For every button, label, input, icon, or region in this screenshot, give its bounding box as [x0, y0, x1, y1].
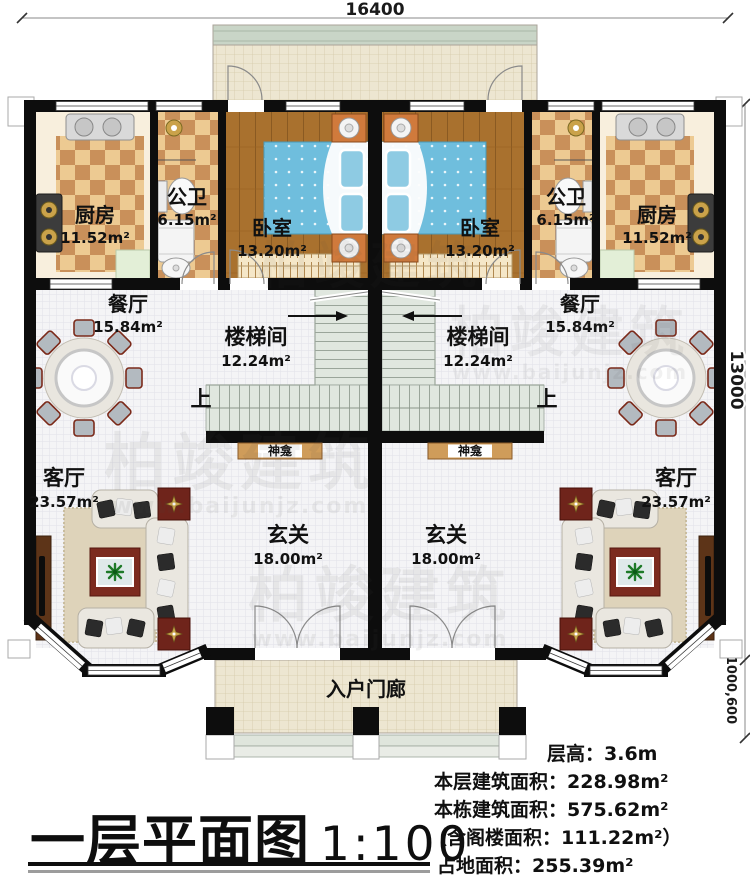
- label-dining-left-area: 15.84m²: [93, 318, 163, 336]
- label-dining-left-name: 餐厅: [108, 292, 148, 316]
- info-floor-area: 本层建筑面积：228.98m²: [434, 767, 668, 794]
- label-porch: 入户门廊: [326, 677, 406, 701]
- info-building-area: 本栋建筑面积：575.62m²: [434, 795, 668, 822]
- dimension-right-offsets: 1000,600: [723, 656, 738, 724]
- info-attic-area: （含阁楼面积：111.22m²）: [428, 823, 681, 850]
- label-living-left-name: 客厅: [43, 466, 85, 490]
- label-kitchen-right-name: 厨房: [637, 203, 677, 227]
- label-shrine-left: 神龛: [268, 443, 293, 458]
- label-bedroom-left-area: 13.20m²: [237, 242, 307, 260]
- label-bathroom-right-area: 6.15m²: [536, 211, 595, 229]
- info-floor-height: 层高：3.6m: [547, 739, 657, 766]
- info-land-area: 占地面积：255.39m²: [437, 851, 633, 878]
- label-foyer-left-area: 18.00m²: [253, 550, 323, 568]
- label-foyer-right-area: 18.00m²: [411, 550, 481, 568]
- label-foyer-right-name: 玄关: [425, 523, 467, 547]
- label-dining-right-area: 15.84m²: [545, 318, 615, 336]
- label-kitchen-left-area: 11.52m²: [60, 229, 130, 247]
- label-bathroom-left-area: 6.15m²: [157, 211, 216, 229]
- label-bathroom-right-name: 公卫: [546, 185, 586, 209]
- dimension-top-width: 16400: [345, 0, 404, 20]
- label-stairwell-left-name: 楼梯间: [225, 325, 288, 349]
- title-underline: [28, 862, 430, 866]
- label-kitchen-right-area: 11.52m²: [622, 229, 692, 247]
- label-stairwell-right-area: 12.24m²: [443, 352, 513, 370]
- label-stairwell-right-name: 楼梯间: [447, 325, 510, 349]
- label-living-right-area: 23.57m²: [641, 493, 711, 511]
- floor-plan-svg: 16400 13000 1000,600: [0, 0, 750, 775]
- label-bedroom-left-name: 卧室: [252, 216, 292, 240]
- label-up-left: 上: [191, 387, 212, 411]
- label-shrine-right: 神龛: [458, 443, 483, 458]
- label-stairwell-left-area: 12.24m²: [221, 352, 291, 370]
- dimension-right-height: 13000: [726, 350, 746, 409]
- label-living-right-name: 客厅: [655, 466, 697, 490]
- label-foyer-left-name: 玄关: [267, 523, 309, 547]
- label-bedroom-right-name: 卧室: [460, 216, 500, 240]
- terrace: [213, 25, 537, 101]
- floor-plan-canvas: 16400 13000 1000,600: [0, 0, 750, 883]
- label-up-right: 上: [537, 387, 558, 411]
- label-bathroom-left-name: 公卫: [167, 185, 207, 209]
- label-bedroom-right-area: 13.20m²: [445, 242, 515, 260]
- label-kitchen-left-name: 厨房: [75, 203, 115, 227]
- label-dining-right-name: 餐厅: [560, 292, 600, 316]
- title-underline-shadow: [28, 870, 430, 873]
- label-living-left-area: 23.57m²: [29, 493, 99, 511]
